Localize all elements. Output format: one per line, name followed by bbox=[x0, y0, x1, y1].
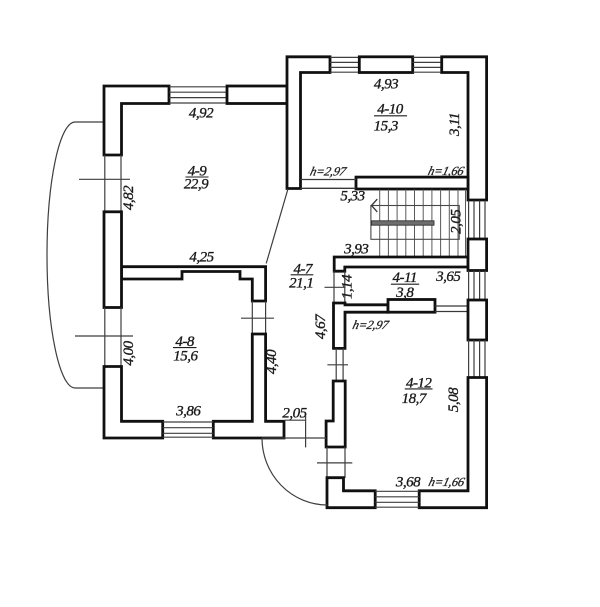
svg-text:18,7: 18,7 bbox=[402, 391, 428, 407]
svg-text:2,05: 2,05 bbox=[449, 209, 465, 234]
svg-text:1,14: 1,14 bbox=[340, 274, 356, 299]
svg-text:3,93: 3,93 bbox=[343, 241, 368, 257]
svg-text:4,25: 4,25 bbox=[189, 250, 214, 266]
svg-text:22,9: 22,9 bbox=[184, 177, 209, 193]
svg-text:h=2,97: h=2,97 bbox=[309, 165, 349, 179]
svg-text:3,68: 3,68 bbox=[395, 474, 421, 490]
svg-text:h=1,66: h=1,66 bbox=[427, 475, 467, 489]
svg-text:3,86: 3,86 bbox=[175, 403, 201, 419]
svg-text:h=2,97: h=2,97 bbox=[351, 318, 391, 332]
svg-text:3,65: 3,65 bbox=[435, 269, 461, 285]
svg-text:4-11: 4-11 bbox=[393, 270, 417, 286]
svg-text:h=1,66: h=1,66 bbox=[427, 164, 467, 178]
svg-text:4,82: 4,82 bbox=[121, 185, 137, 210]
svg-text:2,05: 2,05 bbox=[282, 406, 307, 422]
svg-text:3,11: 3,11 bbox=[447, 113, 463, 137]
svg-text:5,08: 5,08 bbox=[446, 387, 462, 412]
svg-text:5,33: 5,33 bbox=[340, 189, 364, 205]
svg-text:4-10: 4-10 bbox=[377, 102, 403, 118]
svg-text:15,3: 15,3 bbox=[374, 118, 398, 134]
svg-text:4,92: 4,92 bbox=[189, 105, 214, 121]
svg-text:4,00: 4,00 bbox=[121, 340, 137, 365]
svg-text:3,8: 3,8 bbox=[395, 285, 414, 301]
svg-text:15,6: 15,6 bbox=[173, 348, 198, 364]
svg-text:4,67: 4,67 bbox=[313, 313, 329, 339]
svg-text:21,1: 21,1 bbox=[289, 276, 313, 292]
svg-text:4,93: 4,93 bbox=[374, 76, 398, 92]
